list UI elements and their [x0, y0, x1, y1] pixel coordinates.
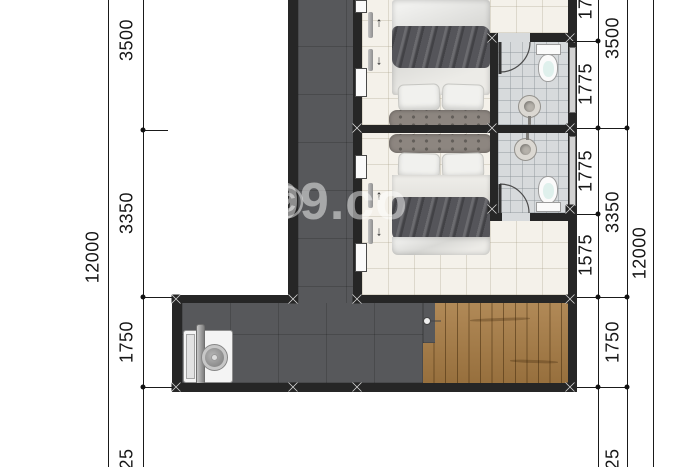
door-arc-bath2: [500, 184, 529, 213]
dim-label-right-1750: 1750: [603, 321, 624, 363]
column-marker: [289, 383, 298, 392]
dim-extension: [577, 387, 628, 388]
dim-tick: [141, 295, 146, 300]
dim-extension: [143, 297, 173, 298]
dim-label-left-3500: 3500: [117, 19, 138, 61]
dim-label-right-total: 12000: [630, 227, 651, 280]
dim-extension: [143, 130, 168, 131]
dim-label-right-1775a: 1775: [576, 63, 597, 105]
column-marker: [488, 34, 497, 43]
dim-tick: [596, 39, 601, 44]
dim-extension: [577, 128, 628, 129]
column-marker: [488, 205, 497, 214]
dim-line-right-outer: [653, 0, 654, 467]
dim-tick: [596, 385, 601, 390]
dim-tick: [596, 126, 601, 131]
column-marker: [566, 205, 575, 214]
dim-tick: [141, 385, 146, 390]
column-marker: [566, 124, 575, 133]
column-marker: [353, 124, 362, 133]
dim-tick: [625, 126, 630, 131]
dim-tick: [596, 212, 601, 217]
column-marker: [353, 295, 362, 304]
dim-extension: [143, 387, 173, 388]
dim-line-left-inner: [143, 0, 144, 467]
dim-line-right-inner: [598, 0, 599, 467]
column-marker: [566, 295, 575, 304]
dim-label-right-17: 17: [576, 0, 597, 20]
dim-label-right-3500: 3500: [603, 17, 624, 59]
dim-label-left-total: 12000: [83, 231, 104, 284]
dim-label-right-1575: 1575: [576, 234, 597, 276]
column-marker: [289, 295, 298, 304]
column-marker: [566, 383, 575, 392]
dim-label-right-cut: 25: [603, 448, 624, 467]
floor-plan-canvas: ↑ ↓ ↑ ↓: [0, 0, 700, 467]
dim-label-left-1750: 1750: [117, 321, 138, 363]
dim-line-left-outer: [108, 0, 109, 467]
dim-label-right-1775b: 1775: [576, 150, 597, 192]
dim-tick: [141, 128, 146, 133]
dim-label-left-3350: 3350: [117, 192, 138, 234]
dim-label-left-cut: 25: [117, 448, 138, 467]
dim-line-right-mid: [627, 0, 628, 467]
dim-tick: [625, 385, 630, 390]
dim-tick: [596, 295, 601, 300]
door-arc-bath1: [500, 42, 530, 72]
dim-tick: [625, 295, 630, 300]
column-marker: [488, 124, 497, 133]
dim-extension: [577, 297, 628, 298]
column-marker: [353, 383, 362, 392]
stair-start-marker: [424, 318, 431, 325]
column-marker: [172, 295, 181, 304]
dim-label-right-3350: 3350: [603, 191, 624, 233]
